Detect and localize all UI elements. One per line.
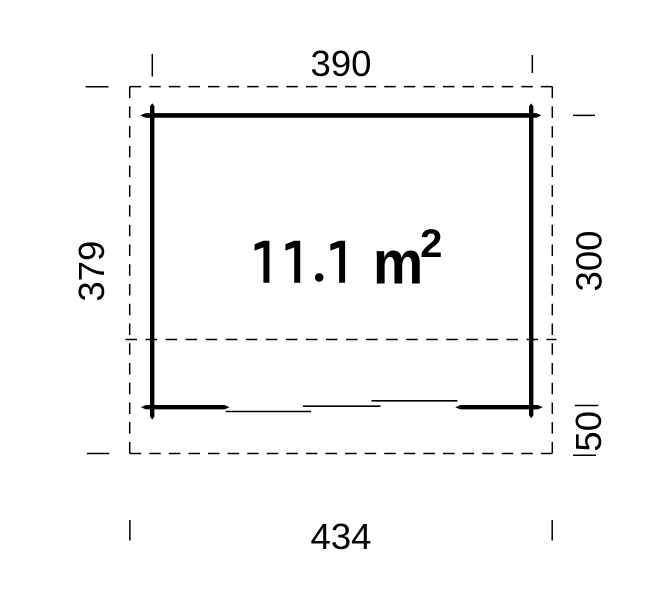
- svg-text:m: m: [373, 228, 423, 296]
- svg-text:379: 379: [71, 241, 112, 302]
- svg-text:2: 2: [420, 222, 442, 266]
- svg-text:390: 390: [311, 43, 372, 84]
- svg-text:50: 50: [568, 411, 609, 452]
- svg-text:434: 434: [311, 516, 372, 557]
- svg-text:300: 300: [569, 231, 610, 292]
